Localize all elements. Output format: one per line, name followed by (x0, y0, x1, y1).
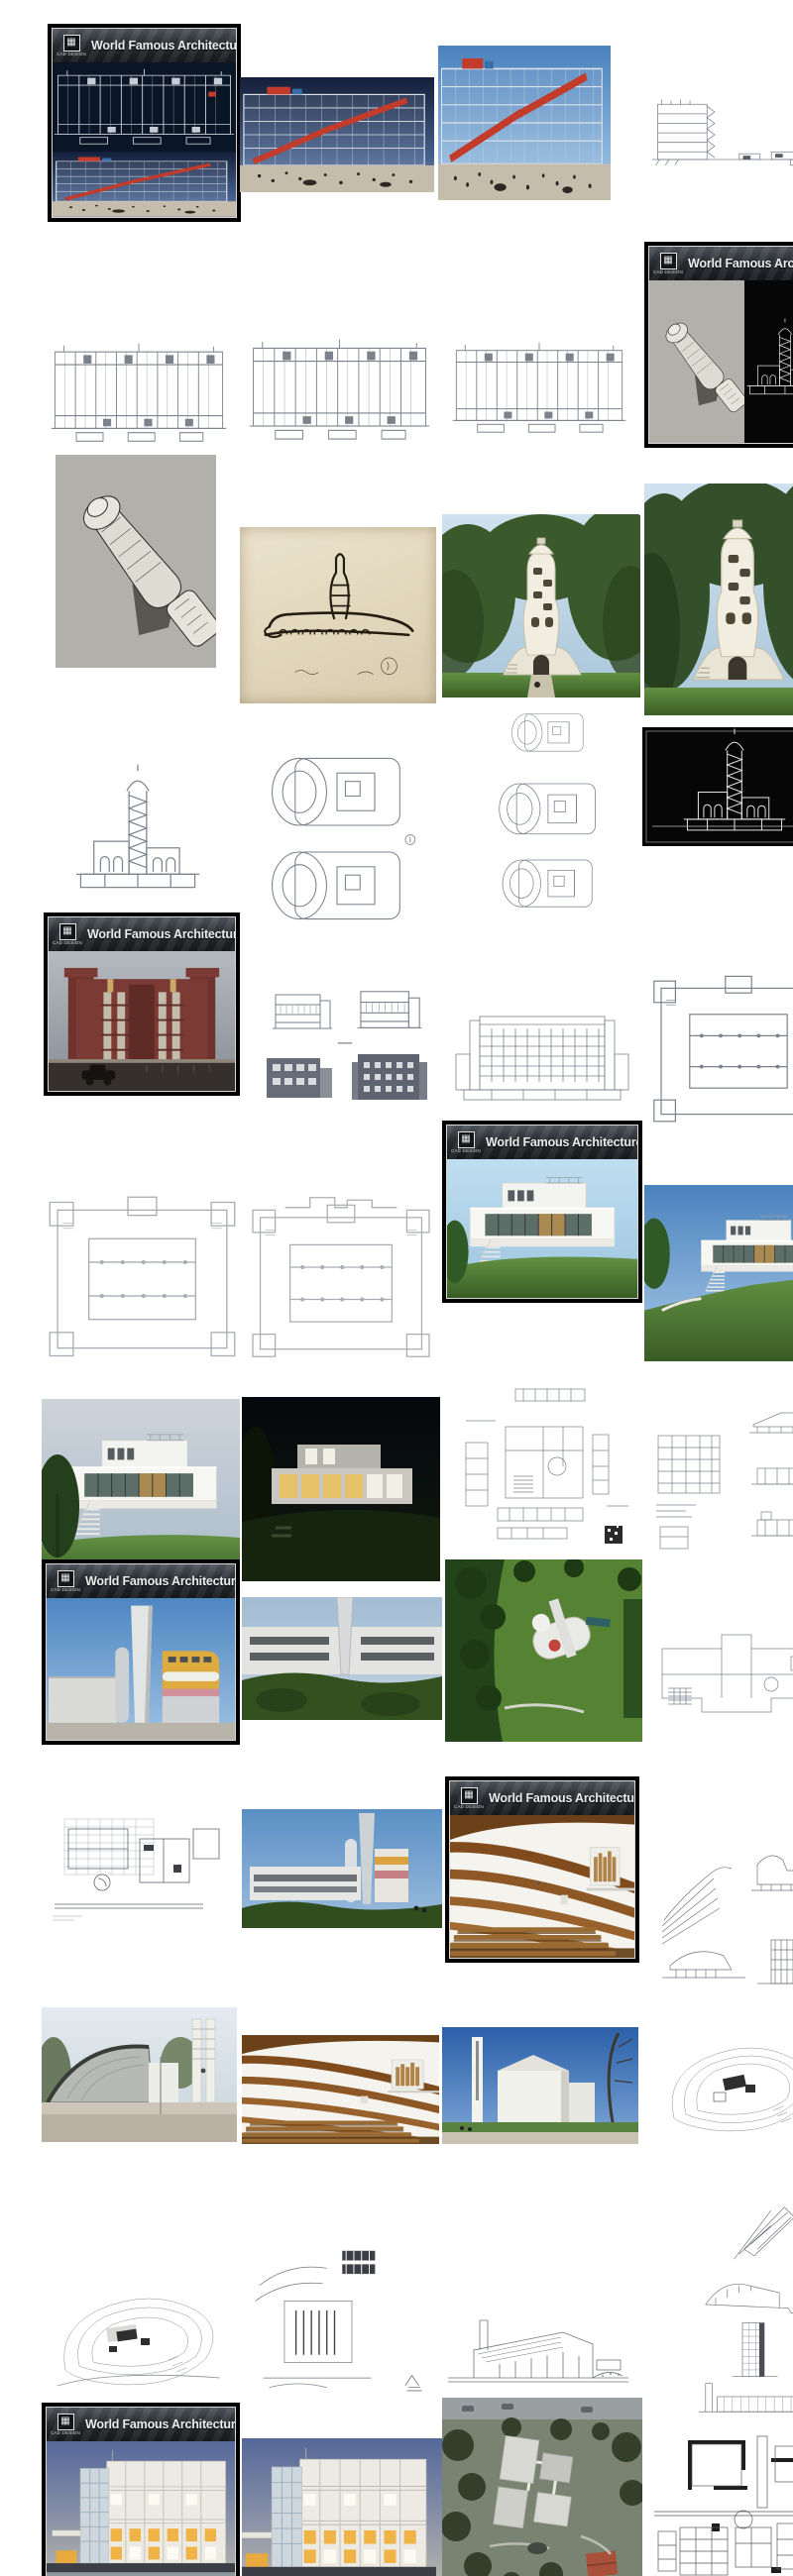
logo-caption: CAD DESIGN (51, 1587, 80, 1592)
gallery-collage: ▦CAD DESIGN World Famous Architecture (0, 0, 793, 2576)
thumb-riola-section-sketches[interactable] (654, 1837, 793, 2013)
thumb-pompidou-photo-dusk[interactable] (240, 77, 434, 192)
thumb-pompidou-photo-day[interactable] (438, 46, 611, 200)
thumb-sketch-site-contours[interactable] (52, 2275, 228, 2398)
thumb-pompidou-elevation-1[interactable] (50, 335, 228, 452)
thumb-meier-photo-dusk[interactable] (242, 2438, 442, 2576)
thumb-tugendhat-render-night[interactable] (242, 1397, 440, 1581)
thumb-riola-site-sketch[interactable] (654, 2019, 793, 2148)
thumb-sketch-site-building[interactable] (248, 2243, 387, 2416)
thumb-larkin-small-elevations[interactable] (253, 979, 436, 1113)
thumb-larkin-plan-2[interactable] (45, 1177, 240, 1381)
thumb-cover-riola[interactable]: ▦CAD DESIGN World Famous Architecture (445, 1776, 639, 1963)
thumb-sketch-stack[interactable] (679, 2200, 793, 2418)
thumb-pompidou-elevation-3[interactable] (451, 335, 627, 442)
thumb-cover-wallhouse[interactable]: ▦CAD DESIGN World Famous Architecture (42, 1559, 240, 1745)
cover-banner: ▦CAD DESIGN World Famous Architecture (447, 1126, 637, 1159)
banner-title: World Famous Architecture (489, 1791, 634, 1805)
thumb-wallhouse-plan-cad[interactable] (45, 1809, 229, 1930)
crest-icon: ▦ (660, 253, 677, 269)
crest-icon: ▦ (57, 2414, 74, 2430)
thumb-meier-aerial[interactable] (442, 2398, 642, 2576)
thumb-einstein-black-cad[interactable] (642, 727, 793, 846)
banner-title: World Famous Architecture (688, 257, 793, 270)
thumb-einstein-section-elevation[interactable] (50, 758, 226, 912)
thumb-einstein-photo-trees[interactable] (442, 514, 640, 698)
thumb-meier-plan[interactable] (652, 2428, 793, 2576)
thumb-cover-pompidou[interactable]: ▦CAD DESIGN World Famous Architecture (48, 24, 241, 222)
thumb-riola-exterior[interactable] (42, 2007, 237, 2142)
thumb-pompidou-elevation-2[interactable] (248, 331, 431, 450)
thumb-einstein-floor-plans[interactable] (253, 742, 421, 937)
thumb-pompidou-section-drawing[interactable] (648, 87, 793, 182)
thumb-wallhouse-aerial[interactable] (445, 1559, 642, 1742)
banner-title: World Famous Architecture (85, 1574, 235, 1588)
crest-icon: ▦ (63, 35, 80, 52)
thumb-tugendhat-elevation-stack[interactable] (743, 1391, 793, 1589)
thumb-sketch-long-section[interactable] (444, 2305, 632, 2404)
thumb-larkin-plan-3[interactable] (248, 1173, 434, 1381)
cover-banner: ▦CAD DESIGN World Famous Architecture (47, 2408, 235, 2441)
logo-caption: CAD DESIGN (53, 940, 82, 945)
cover-banner: ▦CAD DESIGN World Famous Architecture (53, 29, 236, 62)
thumb-einstein-small-plans[interactable] (473, 701, 622, 914)
thumb-cover-einstein[interactable]: ▦CAD DESIGN World Famous Architecture (644, 242, 793, 448)
logo-caption: CAD DESIGN (51, 2430, 80, 2435)
cover-banner: ▦CAD DESIGN World Famous Architecture (649, 247, 793, 280)
thumb-wallhouse-plan[interactable] (652, 1619, 793, 1726)
logo-caption: CAD DESIGN (57, 52, 86, 56)
thumb-sketch-tiny[interactable] (398, 2362, 432, 2396)
thumb-riola-exterior-white[interactable] (442, 2027, 638, 2144)
thumb-cover-tugendhat[interactable]: ▦CAD DESIGN World Famous Architecture (442, 1121, 642, 1303)
thumb-cover-larkin[interactable]: ▦CAD DESIGN World Famous Architecture (44, 912, 240, 1096)
crest-icon: ▦ (461, 1787, 478, 1804)
thumb-tugendhat-render-hill[interactable] (644, 1185, 793, 1361)
logo-caption: CAD DESIGN (454, 1804, 484, 1809)
cover-banner: ▦CAD DESIGN World Famous Architecture (49, 917, 235, 951)
thumb-wallhouse-photo-2[interactable] (242, 1809, 442, 1928)
banner-title: World Famous Architecture (486, 1135, 637, 1149)
logo-caption: CAD DESIGN (653, 269, 683, 274)
banner-title: World Famous Architecture (91, 39, 236, 53)
banner-title: World Famous Architecture (87, 927, 235, 941)
cover-banner: ▦CAD DESIGN World Famous Architecture (450, 1781, 634, 1815)
banner-title: World Famous Architecture (85, 2417, 235, 2431)
crest-icon: ▦ (59, 923, 76, 940)
thumb-tugendhat-cad-sheet[interactable] (458, 1381, 638, 1555)
cover-banner: ▦CAD DESIGN World Famous Architecture (47, 1564, 235, 1598)
thumb-larkin-plan-1[interactable] (649, 962, 793, 1140)
thumb-einstein-axonometric[interactable] (56, 455, 216, 668)
thumb-tugendhat-plan-sheet[interactable] (646, 1418, 736, 1566)
thumb-einstein-sketch[interactable] (240, 527, 436, 703)
thumb-cover-meier[interactable]: ▦CAD DESIGN World Famous Architecture (42, 2403, 240, 2576)
crest-icon: ▦ (57, 1570, 74, 1587)
thumb-tugendhat-render-day[interactable] (42, 1399, 240, 1583)
thumb-larkin-elevation-cad[interactable] (452, 995, 632, 1122)
thumb-wallhouse-photo[interactable] (242, 1597, 442, 1720)
thumb-einstein-photo-large[interactable] (644, 483, 793, 715)
crest-icon: ▦ (458, 1131, 475, 1148)
thumb-riola-interior[interactable] (242, 2035, 439, 2144)
logo-caption: CAD DESIGN (451, 1148, 481, 1153)
